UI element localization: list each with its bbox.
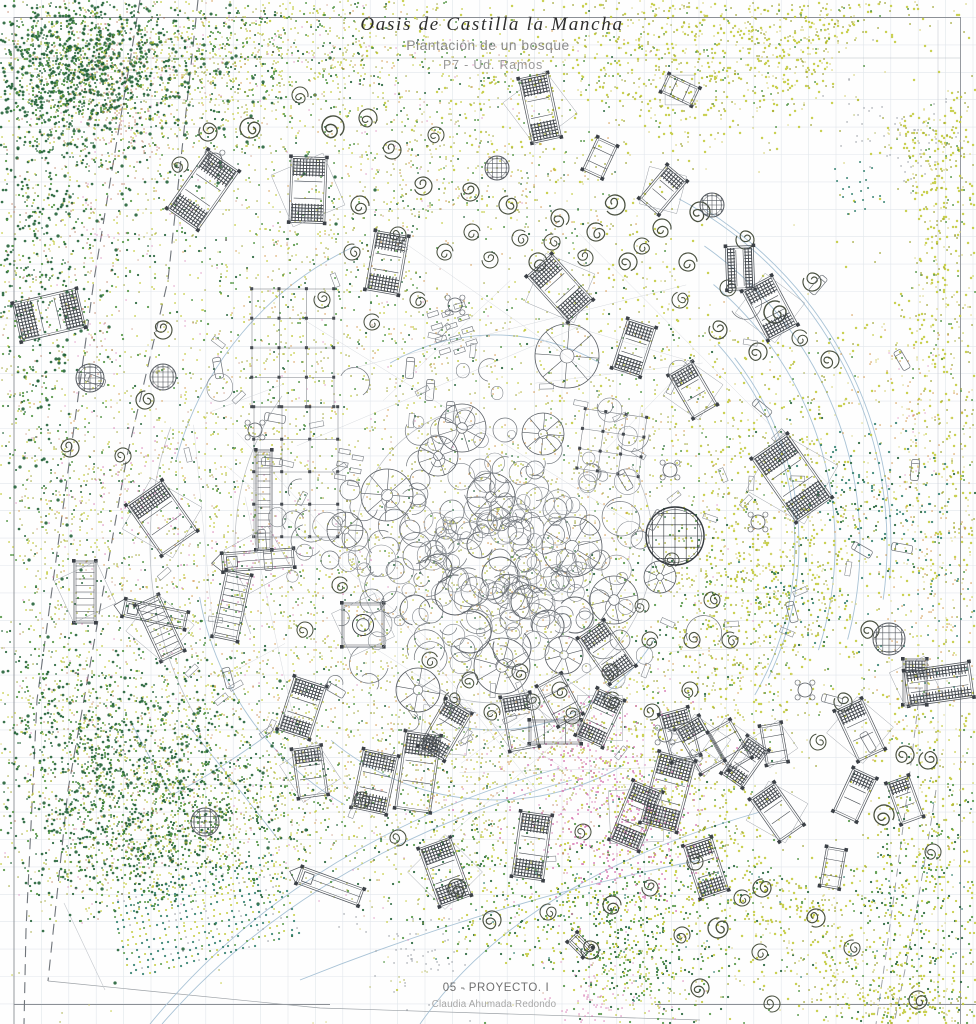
- svg-text:P7 - Ud. Ramos: P7 - Ud. Ramos: [443, 58, 543, 72]
- svg-text:Oasis de Castilla la Mancha: Oasis de Castilla la Mancha: [360, 14, 623, 35]
- svg-text:05 - PROYECTO. I: 05 - PROYECTO. I: [443, 982, 550, 994]
- svg-text:Plantación de un bosque: Plantación de un bosque: [406, 38, 569, 53]
- svg-text:Claudia Ahumada Redondo: Claudia Ahumada Redondo: [432, 999, 557, 1010]
